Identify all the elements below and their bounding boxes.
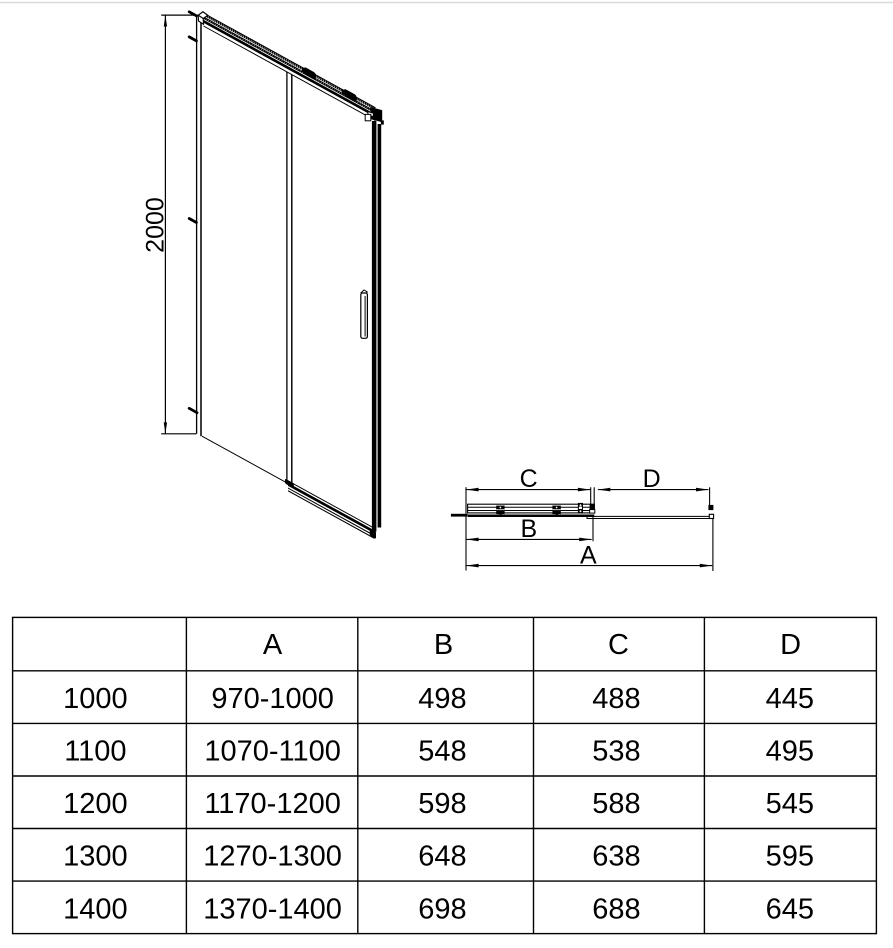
svg-text:445: 445 — [766, 683, 814, 715]
svg-text:1000: 1000 — [63, 683, 128, 715]
svg-text:D: D — [643, 465, 661, 493]
svg-text:D: D — [780, 629, 801, 661]
svg-text:588: 588 — [592, 788, 640, 820]
svg-text:1200: 1200 — [63, 788, 128, 820]
svg-text:1400: 1400 — [63, 893, 128, 925]
svg-text:1300: 1300 — [63, 841, 128, 873]
svg-text:B: B — [520, 515, 537, 543]
svg-text:645: 645 — [766, 893, 814, 925]
svg-text:970-1000: 970-1000 — [211, 683, 334, 715]
svg-text:495: 495 — [766, 736, 814, 768]
svg-text:648: 648 — [418, 841, 466, 873]
svg-text:498: 498 — [418, 683, 466, 715]
svg-text:1070-1100: 1070-1100 — [204, 736, 341, 768]
svg-text:B: B — [434, 629, 453, 661]
svg-text:2000: 2000 — [142, 197, 170, 253]
svg-text:595: 595 — [766, 841, 814, 873]
svg-text:1270-1300: 1270-1300 — [203, 841, 342, 873]
svg-text:638: 638 — [592, 841, 640, 873]
svg-text:545: 545 — [766, 788, 814, 820]
svg-text:548: 548 — [418, 736, 466, 768]
svg-text:1100: 1100 — [64, 736, 126, 768]
svg-text:538: 538 — [592, 736, 640, 768]
svg-text:688: 688 — [592, 893, 640, 925]
svg-text:1370-1400: 1370-1400 — [203, 893, 342, 925]
svg-text:A: A — [263, 629, 283, 661]
svg-text:488: 488 — [592, 683, 640, 715]
svg-text:A: A — [580, 542, 597, 570]
svg-text:C: C — [520, 465, 538, 493]
svg-text:1170-1200: 1170-1200 — [204, 788, 341, 820]
svg-text:598: 598 — [418, 788, 466, 820]
svg-text:698: 698 — [418, 893, 466, 925]
svg-text:C: C — [608, 629, 629, 661]
